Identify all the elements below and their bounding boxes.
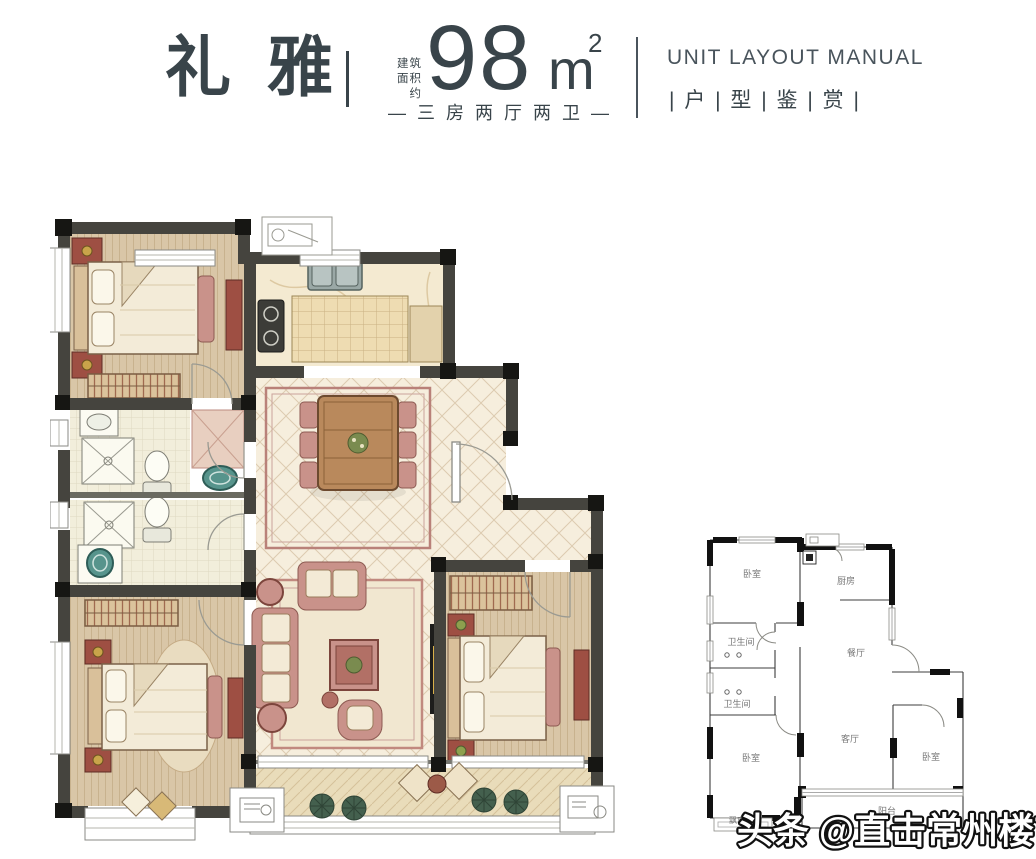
area-prefix-line1: 建筑 bbox=[388, 57, 422, 72]
header-divider-2 bbox=[636, 37, 638, 118]
wardrobe-icon bbox=[450, 576, 532, 610]
sliding-door bbox=[258, 756, 428, 768]
watermark-text: 头条 @直击常州楼市 bbox=[737, 810, 1036, 851]
dresser-icon bbox=[228, 678, 243, 738]
window bbox=[50, 420, 68, 446]
room-label: 卧室 bbox=[922, 751, 940, 762]
main-floor-plan bbox=[50, 210, 650, 855]
window bbox=[707, 641, 713, 661]
bench-icon bbox=[198, 276, 214, 342]
window bbox=[50, 502, 68, 528]
stove-icon bbox=[258, 300, 284, 352]
area-exponent: 2 bbox=[588, 30, 602, 56]
door-arc bbox=[776, 715, 796, 735]
door-arc bbox=[922, 705, 944, 727]
area-prefix-line2: 面积约 bbox=[388, 72, 422, 102]
chinese-subtitle: | 户 | 型 | 鉴 | 赏 | bbox=[669, 84, 861, 114]
washing-machine-icon bbox=[560, 786, 614, 832]
counter-icon bbox=[292, 296, 408, 362]
toilet-icon bbox=[143, 497, 171, 542]
bed-icon bbox=[88, 664, 222, 750]
living-room bbox=[252, 562, 444, 748]
door-arc bbox=[756, 623, 776, 643]
ac-platform bbox=[262, 217, 332, 255]
mini-room-labels: 卧室 厨房 卫生间 餐厅 卫生间 卧室 客厅 卧室 飘窗 阳台 bbox=[723, 568, 940, 825]
room-label: 卧室 bbox=[742, 752, 760, 763]
window bbox=[135, 250, 215, 266]
window bbox=[452, 756, 584, 768]
balcony-window bbox=[250, 816, 595, 834]
page: 礼雅 建筑 面积约 98 m 2 — 三 房 两 厅 两 卫 — UNIT LA… bbox=[0, 0, 1036, 859]
entry-door-arc bbox=[892, 645, 919, 672]
wardrobe-icon bbox=[85, 600, 178, 626]
header-divider-1 bbox=[346, 51, 349, 107]
side-table-icon bbox=[257, 579, 283, 605]
window bbox=[739, 537, 775, 543]
wardrobe-icon bbox=[88, 374, 180, 398]
balcony-table-icon bbox=[428, 775, 446, 793]
mini-wall-blocks bbox=[707, 537, 963, 821]
bench-icon bbox=[208, 676, 222, 738]
area-prefix-label: 建筑 面积约 bbox=[388, 57, 422, 102]
sofa-icon bbox=[252, 608, 298, 708]
english-title: UNIT LAYOUT MANUAL bbox=[667, 46, 924, 70]
bed-icon bbox=[448, 636, 560, 740]
loveseat-icon bbox=[298, 562, 366, 610]
room-label: 餐厅 bbox=[847, 647, 865, 658]
bench-icon bbox=[546, 648, 560, 726]
room-label: 卫生间 bbox=[723, 698, 750, 709]
equipment-platform bbox=[806, 534, 839, 546]
room-label: 卫生间 bbox=[727, 636, 754, 647]
toilet-icon bbox=[143, 451, 171, 496]
washbasin-icon bbox=[78, 545, 122, 583]
side-table-icon bbox=[258, 704, 286, 732]
window bbox=[707, 596, 713, 624]
sink-icon bbox=[803, 551, 816, 564]
room-label: 厨房 bbox=[837, 575, 855, 586]
window bbox=[707, 673, 713, 693]
shower-icon bbox=[84, 502, 134, 548]
shower-icon bbox=[82, 438, 134, 484]
room-label: 卧室 bbox=[743, 568, 761, 579]
washing-machine-icon bbox=[230, 788, 284, 832]
centerpiece-plant-icon bbox=[348, 433, 368, 453]
fridge-icon bbox=[410, 306, 442, 362]
room-label: 客厅 bbox=[841, 733, 859, 744]
dresser-icon bbox=[226, 280, 242, 350]
bed-icon bbox=[74, 262, 214, 354]
bay-window bbox=[50, 642, 70, 754]
layout-spec: — 三 房 两 厅 两 卫 — bbox=[388, 99, 612, 125]
balcony-window bbox=[802, 789, 963, 796]
dresser-icon bbox=[574, 650, 589, 720]
area-value: 98 bbox=[426, 12, 532, 104]
pouf-icon bbox=[322, 692, 338, 708]
dining-table-icon bbox=[318, 396, 398, 490]
window bbox=[889, 608, 895, 640]
watermark: 头条 @直击常州楼市 bbox=[735, 799, 1036, 859]
bay-window bbox=[50, 248, 70, 332]
toilet-icon bbox=[725, 653, 741, 694]
window bbox=[836, 544, 864, 550]
coffee-table-icon bbox=[330, 640, 378, 690]
page-title: 礼雅 bbox=[165, 34, 369, 100]
